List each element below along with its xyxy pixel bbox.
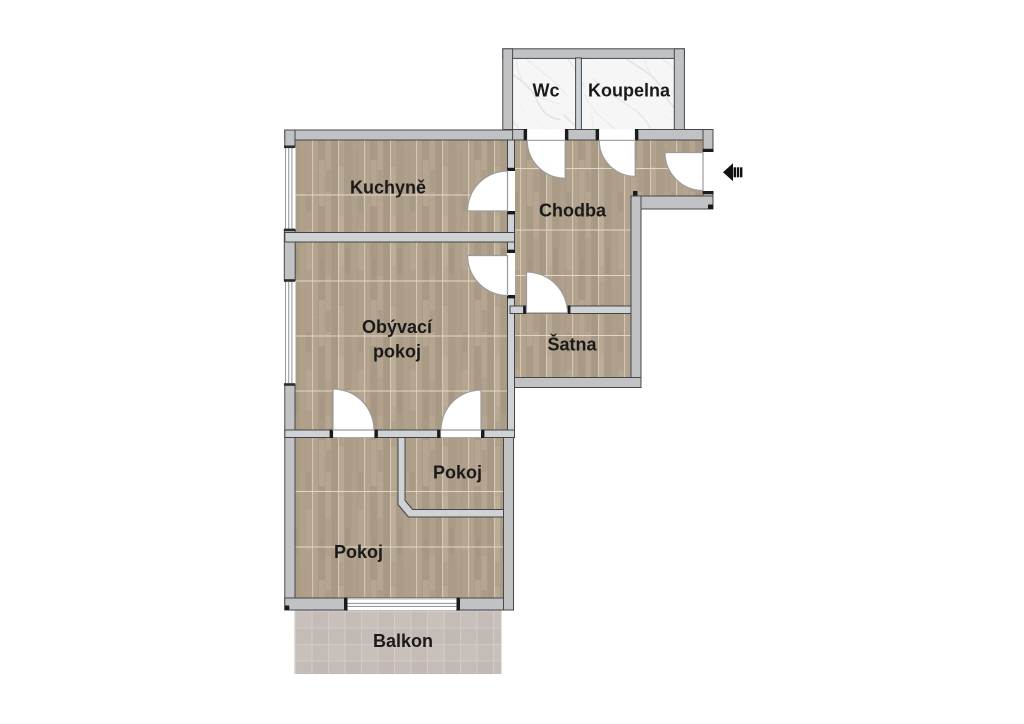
svg-text:Obývací: Obývací [362, 317, 433, 337]
svg-text:Šatna: Šatna [547, 334, 597, 355]
svg-text:Wc: Wc [533, 81, 560, 101]
svg-text:Chodba: Chodba [539, 201, 607, 221]
svg-text:Pokoj: Pokoj [334, 542, 383, 562]
svg-text:Pokoj: Pokoj [433, 463, 482, 483]
svg-text:Kuchyně: Kuchyně [350, 178, 426, 198]
svg-text:pokoj: pokoj [373, 342, 421, 362]
svg-text:Koupelna: Koupelna [588, 81, 671, 101]
svg-text:Balkon: Balkon [373, 631, 433, 651]
